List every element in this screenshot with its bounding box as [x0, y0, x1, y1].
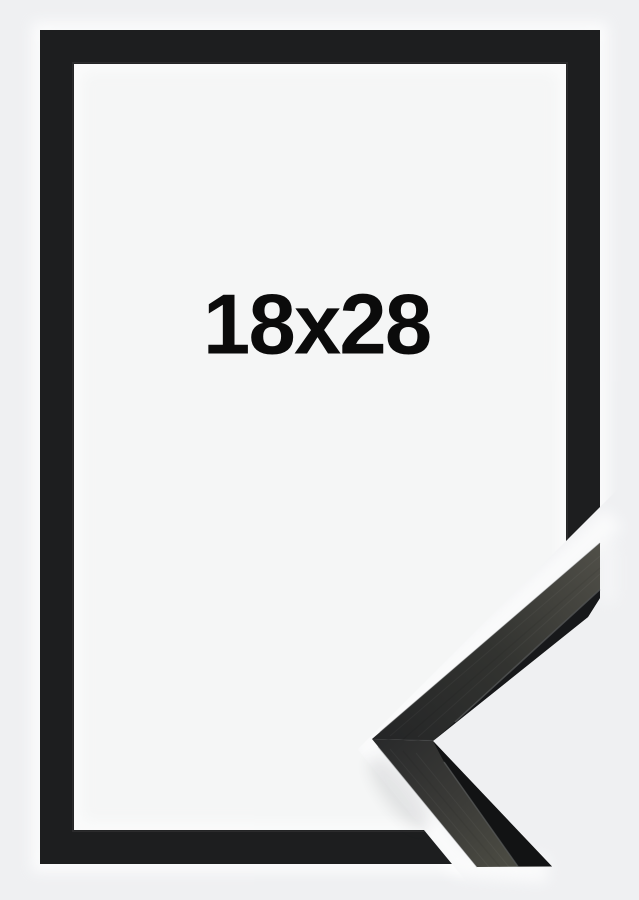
- svg-text:18x28: 18x28: [203, 278, 430, 373]
